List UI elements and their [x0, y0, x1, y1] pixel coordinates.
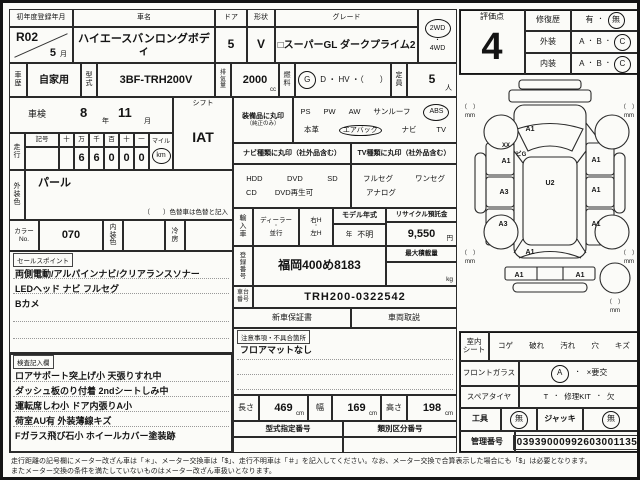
grade-a: A — [579, 60, 584, 69]
drive-2wd-circled: 2WD — [425, 19, 451, 38]
odo-digit-5: 0 — [134, 147, 149, 170]
shape-header: 形状 — [247, 9, 275, 27]
length-cell: 469 cm — [259, 395, 308, 421]
navi-hdd: HDD — [246, 175, 262, 183]
navi-type-header: ナビ種類に丸印（社外品含む） — [233, 143, 351, 164]
shaken-year: 8 — [80, 106, 87, 120]
mark-rear-bumper-left: A1 — [515, 272, 524, 279]
mm-label: mm — [610, 308, 620, 314]
spare-bracket: （ ） — [606, 299, 624, 306]
odo-header-1: 万 — [74, 133, 89, 147]
odo-digit-2: 6 — [89, 147, 104, 170]
equip-ps: PS — [301, 108, 311, 116]
recycle-value: 9,550 — [408, 228, 436, 240]
equip-pw: PW — [324, 108, 336, 116]
repair-history-value: 有 ・ 無 — [571, 9, 639, 31]
sep-dot: ・ — [575, 370, 581, 377]
tread-bracket: （ ） — [620, 104, 638, 111]
eval-value: 4 — [481, 27, 502, 69]
shaken-month-unit: 月 — [144, 118, 151, 126]
vin-label: 車台番号 — [233, 286, 253, 308]
odo-digit-3: 0 — [104, 147, 119, 170]
mark-rear-bumper-right: A1 — [576, 272, 585, 279]
shift-cell: シフト IAT — [173, 97, 233, 170]
first-reg-cell: R02 5 月 — [9, 27, 73, 63]
width-value: 169 — [347, 402, 365, 414]
sales-points-tab: セールスポイント — [13, 253, 73, 267]
seat-label-2: シート — [463, 346, 486, 354]
equip-sunroof: サンルーフ — [373, 108, 410, 116]
payload-header: 最大積載量 — [386, 246, 457, 262]
mark-left-front-door: A1 — [502, 158, 511, 165]
mark-left-slide-door: A3 — [500, 189, 509, 196]
auction-sheet: 初年度登録年月 R02 5 月 車名 ハイエースバンロングボディ ドア 5 形状… — [0, 0, 640, 480]
notes-line: フロアマットなし — [240, 343, 312, 356]
odo-unit-cell: マイル km — [149, 133, 173, 170]
shaken-cell: 車検 8 年 11 月 — [9, 97, 173, 133]
ext-color-cell: パール （ ）色替車は色替と記入 — [25, 170, 233, 220]
width-label: 幅 — [308, 395, 332, 421]
inspect-line-5: Fガラス飛び石小 ホイールカバー塗装跡 — [15, 429, 176, 442]
vehicle-diagram: A1 XX ビG A1 A3 A3 U2 A1 A1 A1 A1 A1 A1 （… — [459, 77, 640, 327]
tv-fullseg: フルセグ — [363, 175, 393, 183]
mark-rear-gate: A1 — [526, 249, 535, 256]
equip-navi: ナビ — [402, 126, 417, 134]
dealer-parallel-cell: ディーラー ・ 並行 — [253, 208, 299, 246]
dotted-rule — [13, 293, 229, 294]
sep-dot: ・ — [553, 394, 559, 401]
exterior-grade-value: A ・ B ・ C — [571, 31, 639, 53]
fuel-label: 燃料 — [279, 63, 295, 97]
payload-cell: kg — [386, 262, 457, 286]
equipment-note: （純正のみ） — [246, 121, 279, 127]
tv-type-header: TV種類に丸印（社外品含む） — [351, 143, 457, 164]
dotted-rule — [237, 389, 453, 390]
odo-symbol-value — [25, 147, 59, 170]
equipment-label-cell: 装備品に丸印 （純正のみ） — [233, 97, 293, 143]
ext-color-value: パール — [38, 177, 71, 189]
vin-value: TRH200-0322542 — [253, 286, 457, 308]
equipment-label: 装備品に丸印 — [239, 113, 287, 121]
jack-value: 無 — [583, 408, 639, 431]
history-label: 車歴 — [9, 63, 27, 97]
import-label: 輸入車 — [233, 208, 253, 246]
reg-era-value: R02 — [16, 31, 38, 44]
dotted-rule — [13, 411, 229, 412]
mgmt-no-label: 管理番号 — [459, 431, 515, 453]
tread-bracket: （ ） — [461, 250, 479, 257]
recycle-unit: 円 — [447, 235, 454, 242]
right-rocker — [614, 153, 625, 213]
length-label: 長さ — [233, 395, 259, 421]
left-rocker — [475, 153, 486, 213]
eval-label: 評価点 — [480, 13, 504, 22]
interior-grade-value: A ・ B ・ C — [571, 53, 639, 75]
spare-tire — [600, 263, 630, 293]
shift-label: シフト — [193, 100, 214, 108]
height-cell: 198 cm — [407, 395, 457, 421]
seat-scratch: キズ — [615, 342, 630, 350]
model-code-label: 型式 — [81, 63, 97, 97]
tv-type-options: フルセグ ワンセグ アナログ — [351, 164, 457, 208]
inspection-tab: 検査記入欄 — [13, 355, 54, 369]
class-no-value — [343, 437, 457, 453]
mark-right-quarter: A1 — [592, 221, 601, 228]
dotted-rule — [13, 396, 229, 397]
interior-c-circled: C — [614, 56, 631, 73]
rear-step — [513, 283, 587, 292]
mm-label: mm — [465, 259, 475, 265]
reg-month-value: 5 — [50, 47, 56, 59]
int-color-value — [123, 220, 165, 251]
mgmt-no-value: 03939000992603001135 — [513, 435, 640, 450]
mark-left-quarter: A3 — [499, 221, 508, 228]
color-note: （ ）色替車は色替と記入 — [144, 209, 229, 216]
navi-cd: CD — [246, 189, 257, 197]
plate-value: 福岡400め8183 — [253, 246, 386, 286]
odo-digit-0 — [59, 147, 74, 170]
mm-label: mm — [624, 113, 634, 119]
grade-a: A — [579, 38, 584, 47]
parallel-option: 並行 — [270, 230, 283, 237]
spare-missing: 欠 — [607, 393, 615, 401]
sep-dot: ・ — [596, 394, 602, 401]
door-value: 5 — [215, 27, 247, 63]
front-glass-label: フロントガラス — [459, 361, 519, 386]
height-label: 高さ — [381, 395, 407, 421]
interior-grade-label: 内装 — [525, 53, 571, 75]
model-year-cell: 年 不明 — [333, 224, 386, 246]
fuel-cell: G D ・ HV ・（ ） — [295, 63, 391, 97]
equip-leather: 本革 — [304, 126, 319, 134]
manual-cell: 車両取説 — [351, 308, 457, 328]
dotted-rule — [237, 374, 453, 375]
color-no-label: カラーNo. — [9, 220, 39, 251]
grade-b: B — [597, 38, 602, 47]
recycle-cell: 9,550 円 — [386, 222, 457, 246]
seat-tear: 破れ — [529, 342, 544, 350]
dotted-rule — [13, 426, 229, 427]
mark-a-pillar-left: XX — [502, 143, 510, 149]
spare-tire-value: T ・ 修理KIT ・ 欠 — [519, 386, 639, 408]
sep-dot: ・ — [587, 61, 593, 68]
odo-symbol-header: 記号 — [25, 133, 59, 147]
spare-tire-label: スペアタイヤ — [459, 386, 519, 408]
km-circled: km — [152, 148, 171, 164]
shape-value: V — [247, 27, 275, 63]
glass-replace: ×要交 — [587, 369, 608, 378]
fuel-g-circled: G — [298, 71, 316, 89]
repair-yes: 有 — [585, 16, 593, 25]
sep-dot: ・ — [587, 39, 593, 46]
mark-hood: A1 — [526, 126, 535, 133]
equip-airbag-circled: エアバック — [339, 125, 382, 137]
displacement-label: 排気量 — [215, 63, 231, 97]
equip-tv: TV — [436, 126, 446, 134]
tools-value: 無 — [501, 408, 537, 431]
odo-digit-4: 0 — [119, 147, 134, 170]
grade-value: □スーパーGL ダークプライム2 — [275, 27, 418, 63]
type-cert-value — [233, 437, 343, 453]
navi-sd: SD — [327, 175, 337, 183]
length-value: 469 — [274, 402, 292, 414]
tools-none-circled: 無 — [510, 411, 528, 429]
displacement-unit: cc — [270, 87, 276, 94]
exterior-grade-label: 外装 — [525, 31, 571, 53]
car-name-header: 車名 — [73, 9, 215, 27]
dotted-rule — [13, 278, 229, 279]
drive-sep: ・ — [434, 38, 440, 45]
equipment-options-cell: PS PW AW サンルーフ ABS 本革 エアバック ナビ TV — [293, 97, 457, 143]
spare-t: T — [544, 393, 549, 401]
tools-label: 工具 — [459, 408, 501, 431]
payload-unit: kg — [446, 276, 453, 283]
mark-right-front-door: A1 — [592, 157, 601, 164]
spare-kit: 修理KIT — [564, 393, 591, 401]
shift-value: IAT — [192, 130, 214, 145]
mark-roof: U2 — [546, 180, 555, 187]
jack-label: ジャッキ — [537, 408, 583, 431]
odo-header-3: 百 — [104, 133, 119, 147]
dotted-rule — [13, 381, 229, 382]
front-right-wheel — [595, 115, 629, 149]
ac-label: 冷房 — [165, 220, 185, 251]
front-glass-value: A ・ ×要交 — [519, 361, 639, 386]
tv-analog: アナログ — [366, 189, 396, 197]
shaken-year-unit: 年 — [102, 118, 109, 126]
sales-line-3: Bカメ — [15, 297, 40, 310]
width-cell: 169 cm — [332, 395, 381, 421]
ac-value — [185, 220, 233, 251]
ext-color-label: 外装色 — [9, 170, 25, 220]
length-unit: cm — [296, 411, 304, 418]
mm-label: mm — [465, 113, 475, 119]
model-year-unit: 年 — [346, 231, 353, 238]
sep-dot: ・ — [605, 61, 611, 68]
mileage-label: 走行 — [9, 133, 25, 170]
footer-line-1: 走行距離の記号欄にメーター改ざん車は「＊」、メーター交換車は「$」、走行不明車は… — [11, 457, 637, 467]
odo-header-0: 十 — [59, 133, 74, 147]
equip-aw: AW — [349, 108, 361, 116]
sep-dot: ・ — [597, 17, 603, 24]
height-value: 198 — [423, 402, 441, 414]
dotted-rule — [13, 321, 229, 322]
seat-label-cell: 室内 シート — [459, 331, 489, 361]
capacity-value: 5 — [429, 73, 436, 86]
repair-no-circled: 無 — [608, 12, 625, 29]
class-no-header: 類別区分番号 — [343, 421, 457, 437]
footer-line-2: またメーター交換の条件を満たしていないものはメーター改ざん車扱いとなります。 — [11, 467, 637, 477]
reg-month-unit: 月 — [60, 51, 67, 59]
tread-bracket: （ ） — [461, 104, 479, 111]
tv-oneseg: ワンセグ — [415, 175, 445, 183]
exterior-c-circled: C — [614, 34, 631, 51]
repair-history-label: 修復歴 — [525, 9, 571, 31]
seat-items-cell: コゲ 破れ 汚れ 穴 キズ — [489, 331, 639, 361]
model-year-header: モデル年式 — [333, 208, 386, 224]
color-no-value: 070 — [39, 220, 103, 251]
odo-header-5: 一 — [134, 133, 149, 147]
displacement-value: 2000 — [243, 74, 267, 86]
mark-right-slide-door: A1 — [592, 187, 601, 194]
model-code-value: 3BF-TRH200V — [97, 63, 215, 97]
int-color-label: 内装色 — [103, 220, 123, 251]
type-cert-header: 型式指定番号 — [233, 421, 343, 437]
jack-none-circled: 無 — [602, 411, 620, 429]
capacity-unit: 人 — [445, 85, 452, 93]
mgmt-no-cell: 03939000992603001135 — [515, 431, 639, 453]
roof-panel — [523, 157, 577, 245]
navi-dvd-play: DVD再生可 — [275, 189, 313, 197]
seat-hole: 穴 — [591, 342, 599, 350]
seat-burn: コゲ — [498, 342, 513, 350]
car-name-value: ハイエースバンロングボディ — [73, 27, 215, 63]
model-year-value: 不明 — [357, 231, 373, 240]
width-unit: cm — [369, 411, 377, 418]
history-value: 自家用 — [27, 63, 81, 97]
left-handle: 左H — [310, 230, 321, 237]
warranty-cell: 新車保証書 — [233, 308, 351, 328]
sep-dot: ・ — [605, 39, 611, 46]
mm-label: mm — [624, 259, 634, 265]
plate-label: 登録番号 — [233, 246, 253, 286]
mile-label: マイル — [152, 139, 170, 146]
drive-4wd: 4WD — [430, 45, 446, 53]
seat-stain: 汚れ — [560, 342, 575, 350]
front-bumper — [509, 90, 591, 102]
eval-score-cell: 評価点 4 — [459, 9, 525, 75]
glass-a-circled: A — [551, 365, 569, 383]
displacement-cell: 2000 cc — [231, 63, 279, 97]
dotted-rule — [13, 338, 229, 339]
navi-dvd: DVD — [287, 175, 303, 183]
front-roof-rack — [519, 80, 581, 89]
mark-windshield: ビG — [516, 150, 527, 158]
drive-type-cell: 2WD ・ 4WD — [418, 9, 457, 63]
fuel-options: D ・ HV ・（ ） — [320, 76, 388, 85]
odo-digit-1: 6 — [74, 147, 89, 170]
capacity-label: 定員 — [391, 63, 407, 97]
odo-header-2: 千 — [89, 133, 104, 147]
tread-bracket: （ ） — [620, 250, 638, 257]
dotted-rule — [237, 359, 453, 360]
door-header: ドア — [215, 9, 247, 27]
shaken-month: 11 — [118, 106, 132, 120]
footer-disclaimer: 走行距離の記号欄にメーター改ざん車は「＊」、メーター交換車は「$」、走行不明車は… — [11, 457, 637, 477]
navi-type-options: HDD DVD SD CD DVD再生可 — [233, 164, 351, 208]
capacity-cell: 5 人 — [407, 63, 457, 97]
first-reg-header: 初年度登録年月 — [9, 9, 73, 27]
notes-tab: 注意事項・不具合箇所 — [237, 330, 310, 344]
recycle-header: リサイクル預託金 — [386, 208, 457, 222]
grade-b: B — [597, 60, 602, 69]
grade-header: グレード — [275, 9, 418, 27]
shaken-label: 車検 — [28, 110, 46, 120]
odo-header-4: 十 — [119, 133, 134, 147]
handle-side-cell: 右H ・ 左H — [299, 208, 333, 246]
equip-abs-circled: ABS — [423, 104, 449, 121]
height-unit: cm — [445, 411, 453, 418]
